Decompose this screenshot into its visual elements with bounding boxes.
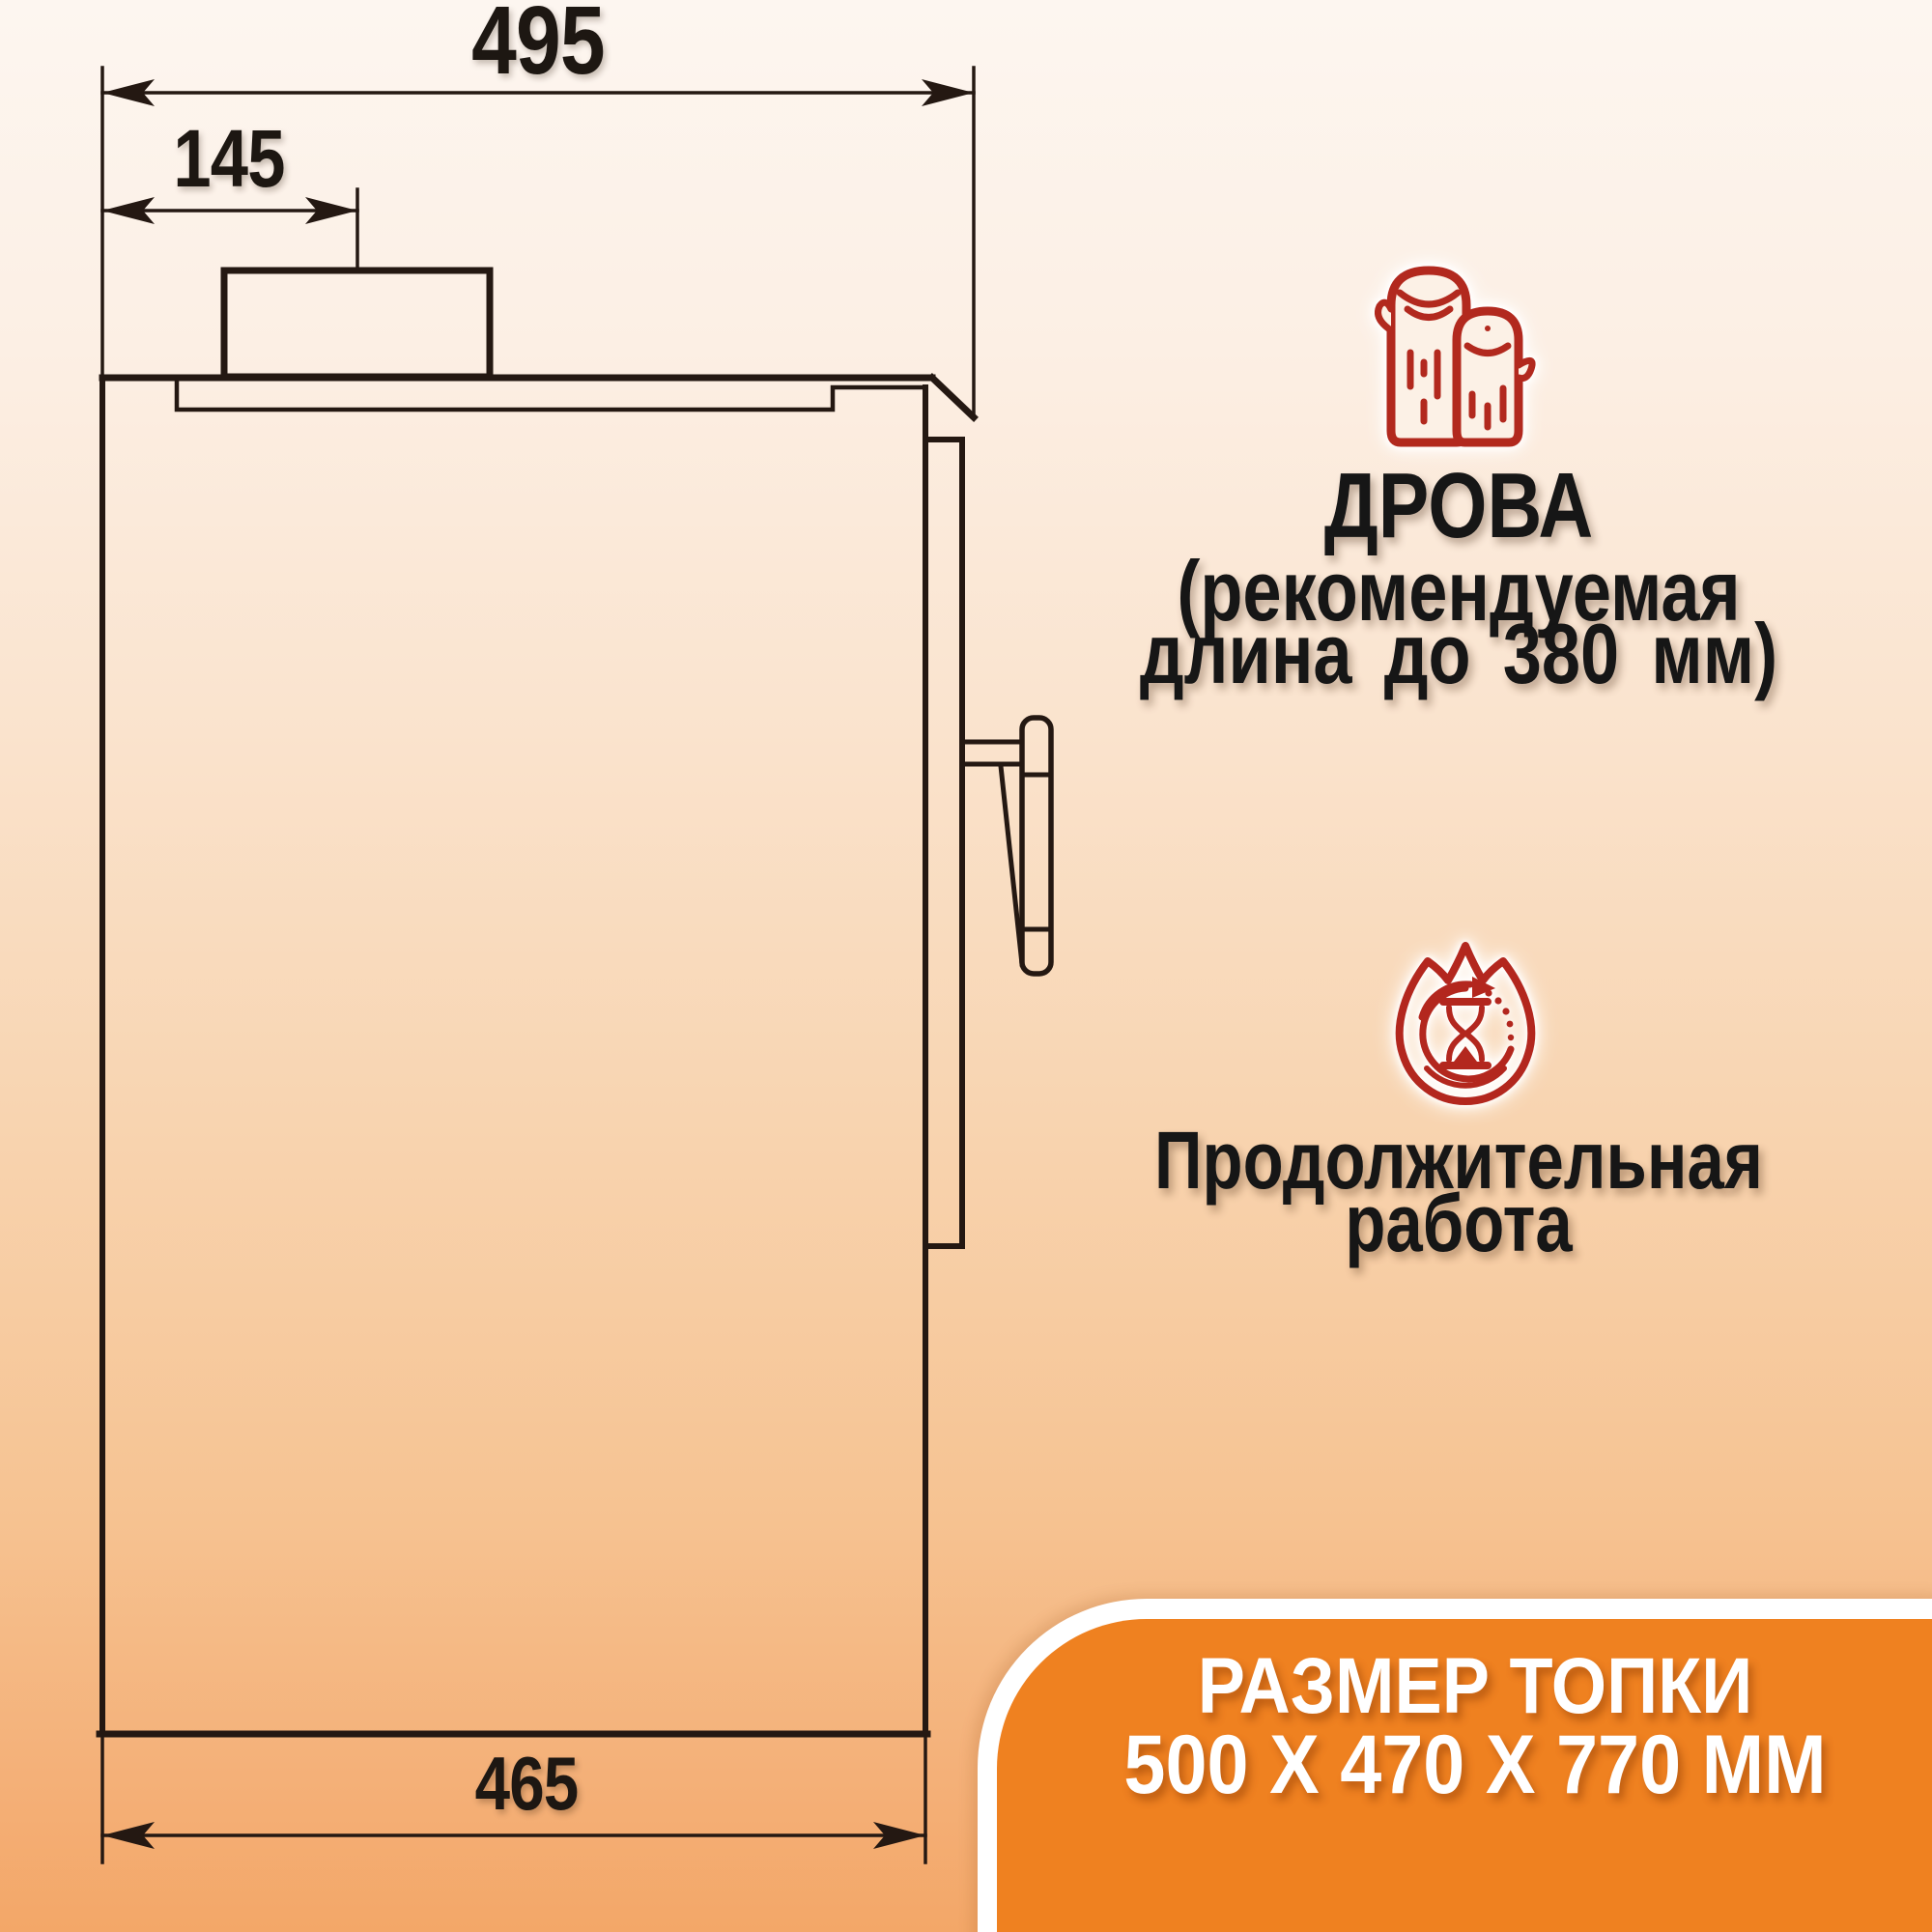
door-handle — [964, 718, 1051, 974]
feature-firewood-subtitle-line2: длина до 380 мм) — [1063, 611, 1855, 696]
dimension-flue-offset-label: 145 — [107, 118, 351, 199]
dimension-overall-width-label: 495 — [376, 0, 700, 89]
flame-duration-icon — [1383, 940, 1548, 1109]
feature-firewood-title: ДРОВА — [1063, 460, 1855, 553]
dimension-lines — [102, 68, 974, 1862]
firebox-size-panel-background: РАЗМЕР ТОПКИ 500 Х 470 Х 770 ММ — [997, 1619, 1932, 1932]
infographic-canvas: 495 145 465 ДРОВА (рекомендуемая длина д… — [0, 0, 1932, 1932]
firebox-size-value: 500 Х 470 Х 770 ММ — [1045, 1723, 1906, 1806]
feature-duration-line2: работа — [1063, 1182, 1855, 1264]
stove-body-outline — [99, 270, 974, 1734]
dimension-arrowheads — [102, 79, 974, 1849]
stove-side-view-drawing — [0, 0, 1063, 1932]
firebox-size-title: РАЗМЕР ТОПКИ — [1045, 1647, 1906, 1726]
firewood-logs-icon — [1372, 261, 1536, 454]
dimension-base-width-label: 465 — [364, 1746, 689, 1821]
firebox-size-panel: РАЗМЕР ТОПКИ 500 Х 470 Х 770 ММ — [978, 1599, 1932, 1932]
